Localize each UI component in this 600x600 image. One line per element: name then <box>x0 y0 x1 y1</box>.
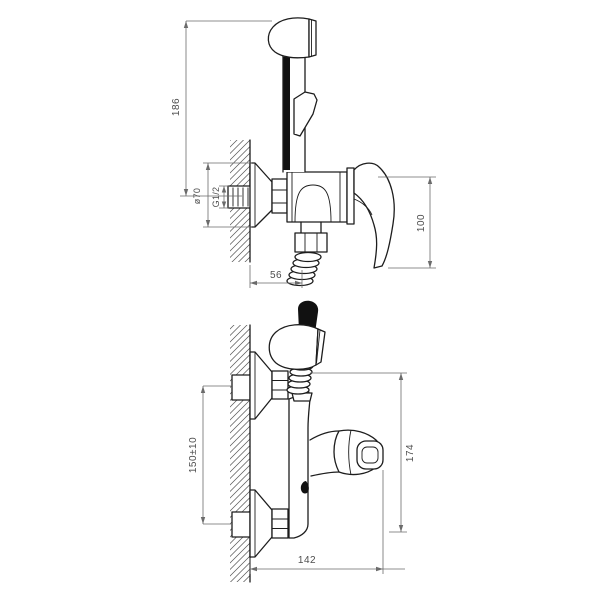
handle-grip-stripe <box>284 57 291 170</box>
docked-sprayer <box>269 301 325 369</box>
dim-label-56: 56 <box>270 270 282 281</box>
hex-nut <box>272 179 287 213</box>
dimension-thread-size: G1/2 <box>211 186 229 208</box>
hose-connection <box>295 222 327 252</box>
upper-thread-block <box>232 375 250 400</box>
dim-label-100: 100 <box>416 214 427 232</box>
lower-thread-block <box>232 512 250 537</box>
knob-end-face <box>357 441 383 469</box>
dim-label-174: 174 <box>405 444 416 462</box>
lower-hex-nut <box>272 509 288 538</box>
dim-label-142: 142 <box>298 555 316 566</box>
spray-head <box>268 18 316 58</box>
hose-coil <box>287 253 321 286</box>
dim-label-186: 186 <box>171 98 182 116</box>
hose-nut <box>295 233 327 252</box>
dim-label-flange-diameter: ø70 <box>192 188 202 204</box>
dim-label-thread-size: G1/2 <box>211 187 221 208</box>
spray-handle <box>283 54 317 173</box>
upper-hex-nut <box>272 371 288 399</box>
spray-face <box>309 19 316 57</box>
mixer-body-front <box>289 384 312 538</box>
dimension-150: 150±10 <box>188 386 232 524</box>
mixer-body <box>287 172 347 222</box>
bidet-mixer-drawing: 186 ø70 G1/2 100 56 <box>0 0 600 600</box>
sprayer-face-front <box>316 329 325 365</box>
sprayer-head-front <box>269 325 318 370</box>
lower-flange-cone <box>250 490 272 557</box>
thread-fitting <box>228 186 252 208</box>
upper-flange-cone <box>250 352 272 419</box>
lever-knob <box>310 430 383 476</box>
technical-drawing-canvas: 186 ø70 G1/2 100 56 <box>0 0 600 600</box>
dim-label-150: 150±10 <box>188 437 199 473</box>
side-view: 186 ø70 G1/2 100 56 <box>171 18 436 288</box>
wall-hatch-front <box>230 325 250 582</box>
lever-handle <box>347 163 394 268</box>
flange-cone <box>250 163 272 227</box>
front-view: 150±10 174 142 <box>188 301 416 582</box>
